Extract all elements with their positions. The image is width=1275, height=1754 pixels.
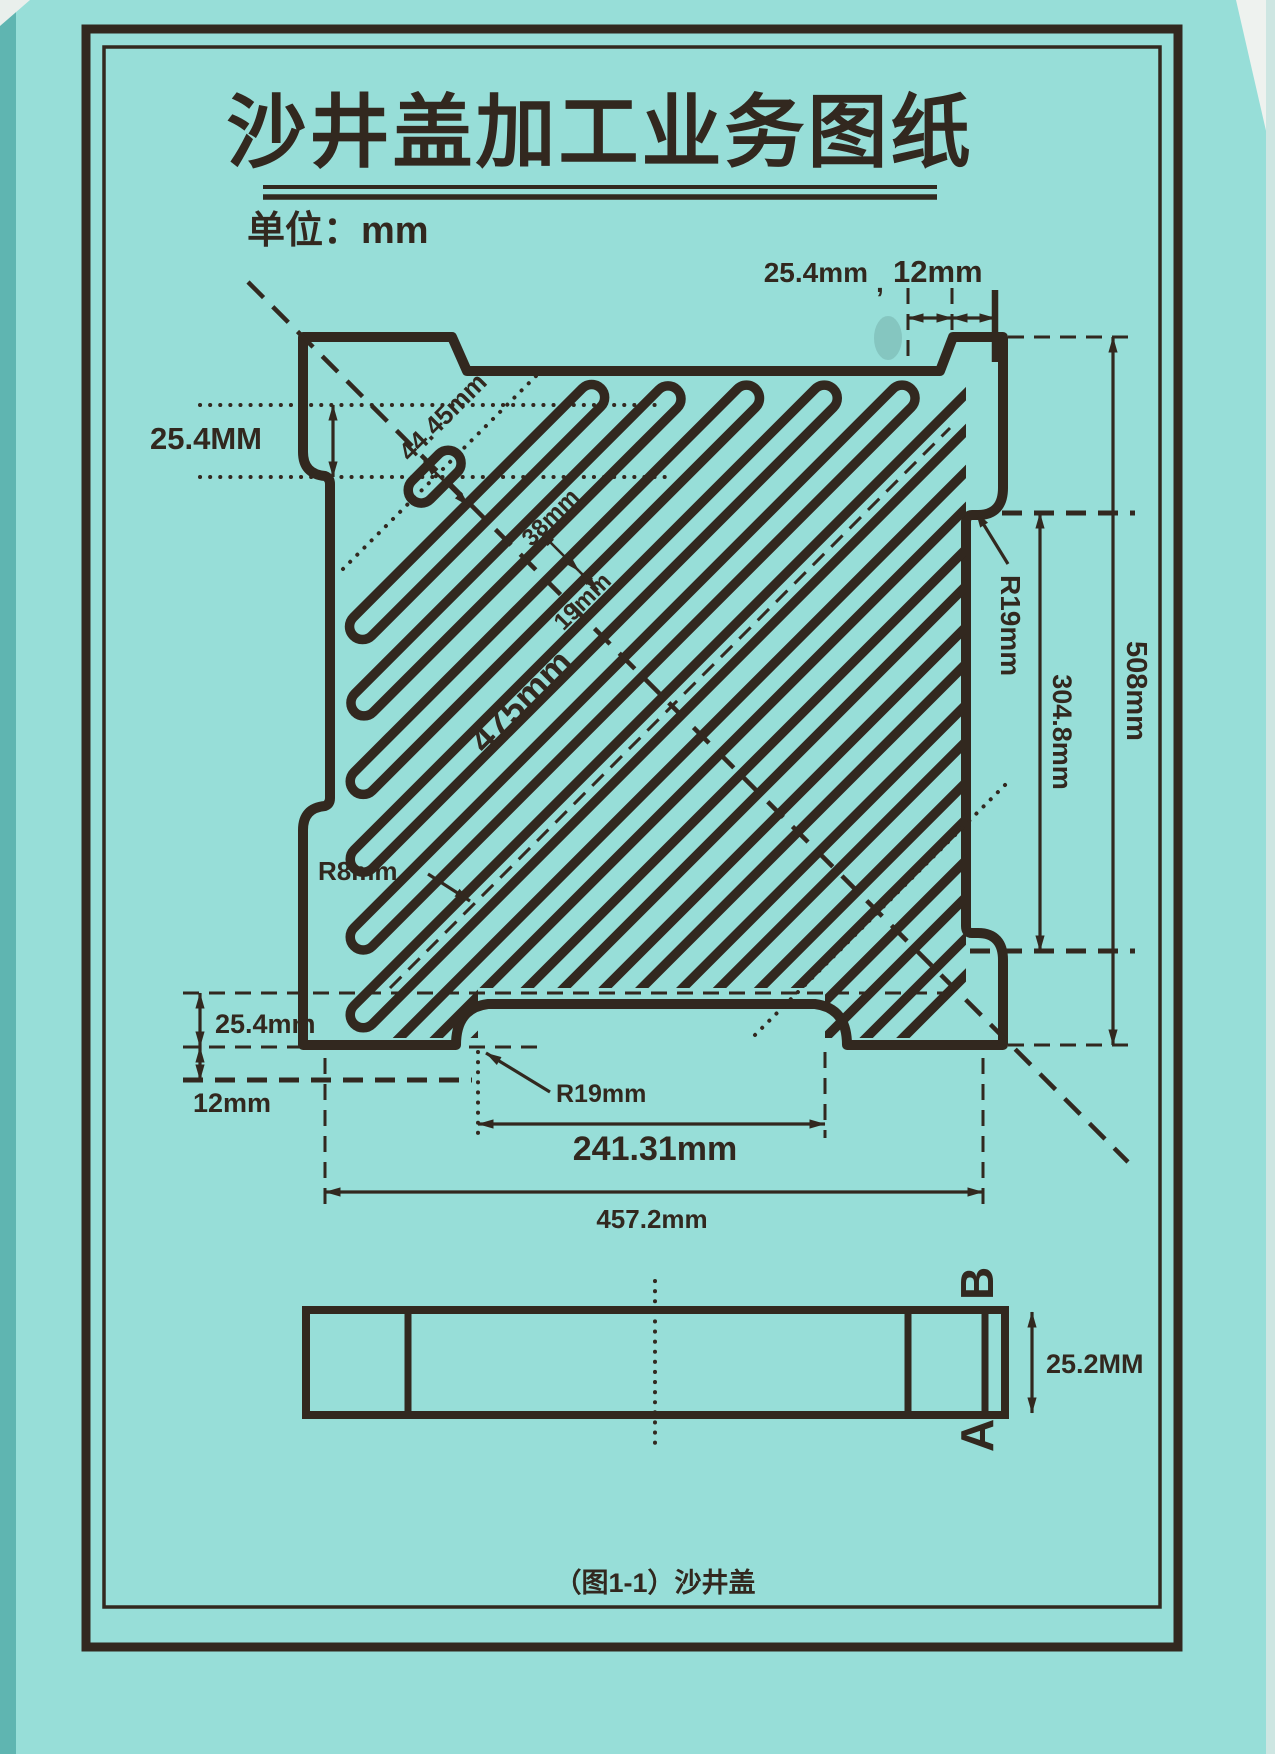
dim-label-bottom-left-depth: 25.4mm bbox=[215, 1009, 316, 1039]
page-title: 沙井盖加工业务图纸 bbox=[227, 88, 974, 177]
dim-label-notch-radius: R19mm bbox=[556, 1080, 646, 1108]
dim-label-slot-end-radius: R8mm bbox=[318, 856, 397, 886]
section-label-b: B bbox=[951, 1267, 1003, 1300]
dim-label-side-recess-height: 304.8mm bbox=[1047, 674, 1077, 790]
dim-separator: , bbox=[876, 267, 884, 298]
page-left-edge-shadow bbox=[0, 0, 16, 1754]
dim-label-top-offset: 25.4mm bbox=[764, 257, 868, 288]
dim-label-thickness: 25.2MM bbox=[1046, 1349, 1144, 1379]
page-right-edge bbox=[1266, 0, 1275, 1754]
figure-caption: （图1-1）沙井盖 bbox=[554, 1568, 755, 1598]
scanned-drawing-page: 沙井盖加工业务图纸 单位：mm bbox=[0, 0, 1275, 1754]
dim-label-overall-height: 508mm bbox=[1120, 641, 1152, 741]
section-label-a: A bbox=[951, 1419, 1003, 1452]
dim-label-bottom-left-edge: 12mm bbox=[193, 1088, 271, 1118]
dim-label-top-left-depth: 25.4MM bbox=[150, 421, 262, 456]
unit-label: 单位：mm bbox=[247, 210, 429, 252]
dim-label-overall-width: 457.2mm bbox=[596, 1204, 707, 1234]
dim-label-notch-width: 241.31mm bbox=[573, 1130, 737, 1168]
scan-smudge bbox=[874, 316, 902, 360]
dim-label-top-edge: 12mm bbox=[893, 254, 983, 289]
drawing-canvas: 沙井盖加工业务图纸 单位：mm bbox=[0, 0, 1275, 1754]
dim-label-side-radius: R19mm bbox=[995, 575, 1026, 676]
